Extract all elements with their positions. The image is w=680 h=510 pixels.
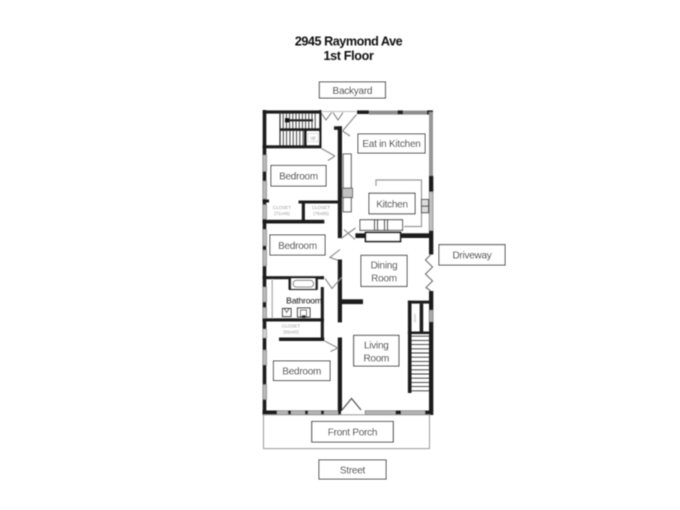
svg-text:(71x46): (71x46) — [274, 211, 290, 216]
svg-text:Front Porch: Front Porch — [328, 428, 378, 439]
svg-text:Bathroom: Bathroom — [286, 296, 322, 306]
svg-text:(55x40): (55x40) — [283, 330, 299, 335]
svg-text:CLOSET: CLOSET — [273, 205, 292, 210]
svg-text:Room: Room — [371, 273, 397, 284]
svg-text:Driveway: Driveway — [452, 251, 491, 262]
svg-text:Backyard: Backyard — [333, 86, 373, 97]
svg-text:(76x85): (76x85) — [313, 211, 329, 216]
svg-text:CLOSET: CLOSET — [282, 324, 301, 329]
svg-text:Bedroom: Bedroom — [282, 367, 321, 378]
svg-text:Living: Living — [364, 340, 389, 351]
svg-text:Kitchen: Kitchen — [376, 200, 408, 211]
svg-text:Street: Street — [340, 465, 366, 476]
svg-text:1st Floor: 1st Floor — [323, 49, 373, 63]
svg-text:up: up — [310, 136, 316, 142]
svg-text:Bedroom: Bedroom — [279, 172, 318, 183]
svg-text:down: down — [413, 313, 417, 322]
svg-text:Eat in Kitchen: Eat in Kitchen — [362, 139, 420, 150]
svg-text:CLOSET: CLOSET — [312, 205, 331, 210]
svg-text:Room: Room — [363, 353, 389, 364]
svg-text:Bedroom: Bedroom — [278, 241, 317, 252]
svg-text:2945 Raymond Ave: 2945 Raymond Ave — [295, 35, 403, 49]
svg-text:Dining: Dining — [371, 260, 398, 271]
